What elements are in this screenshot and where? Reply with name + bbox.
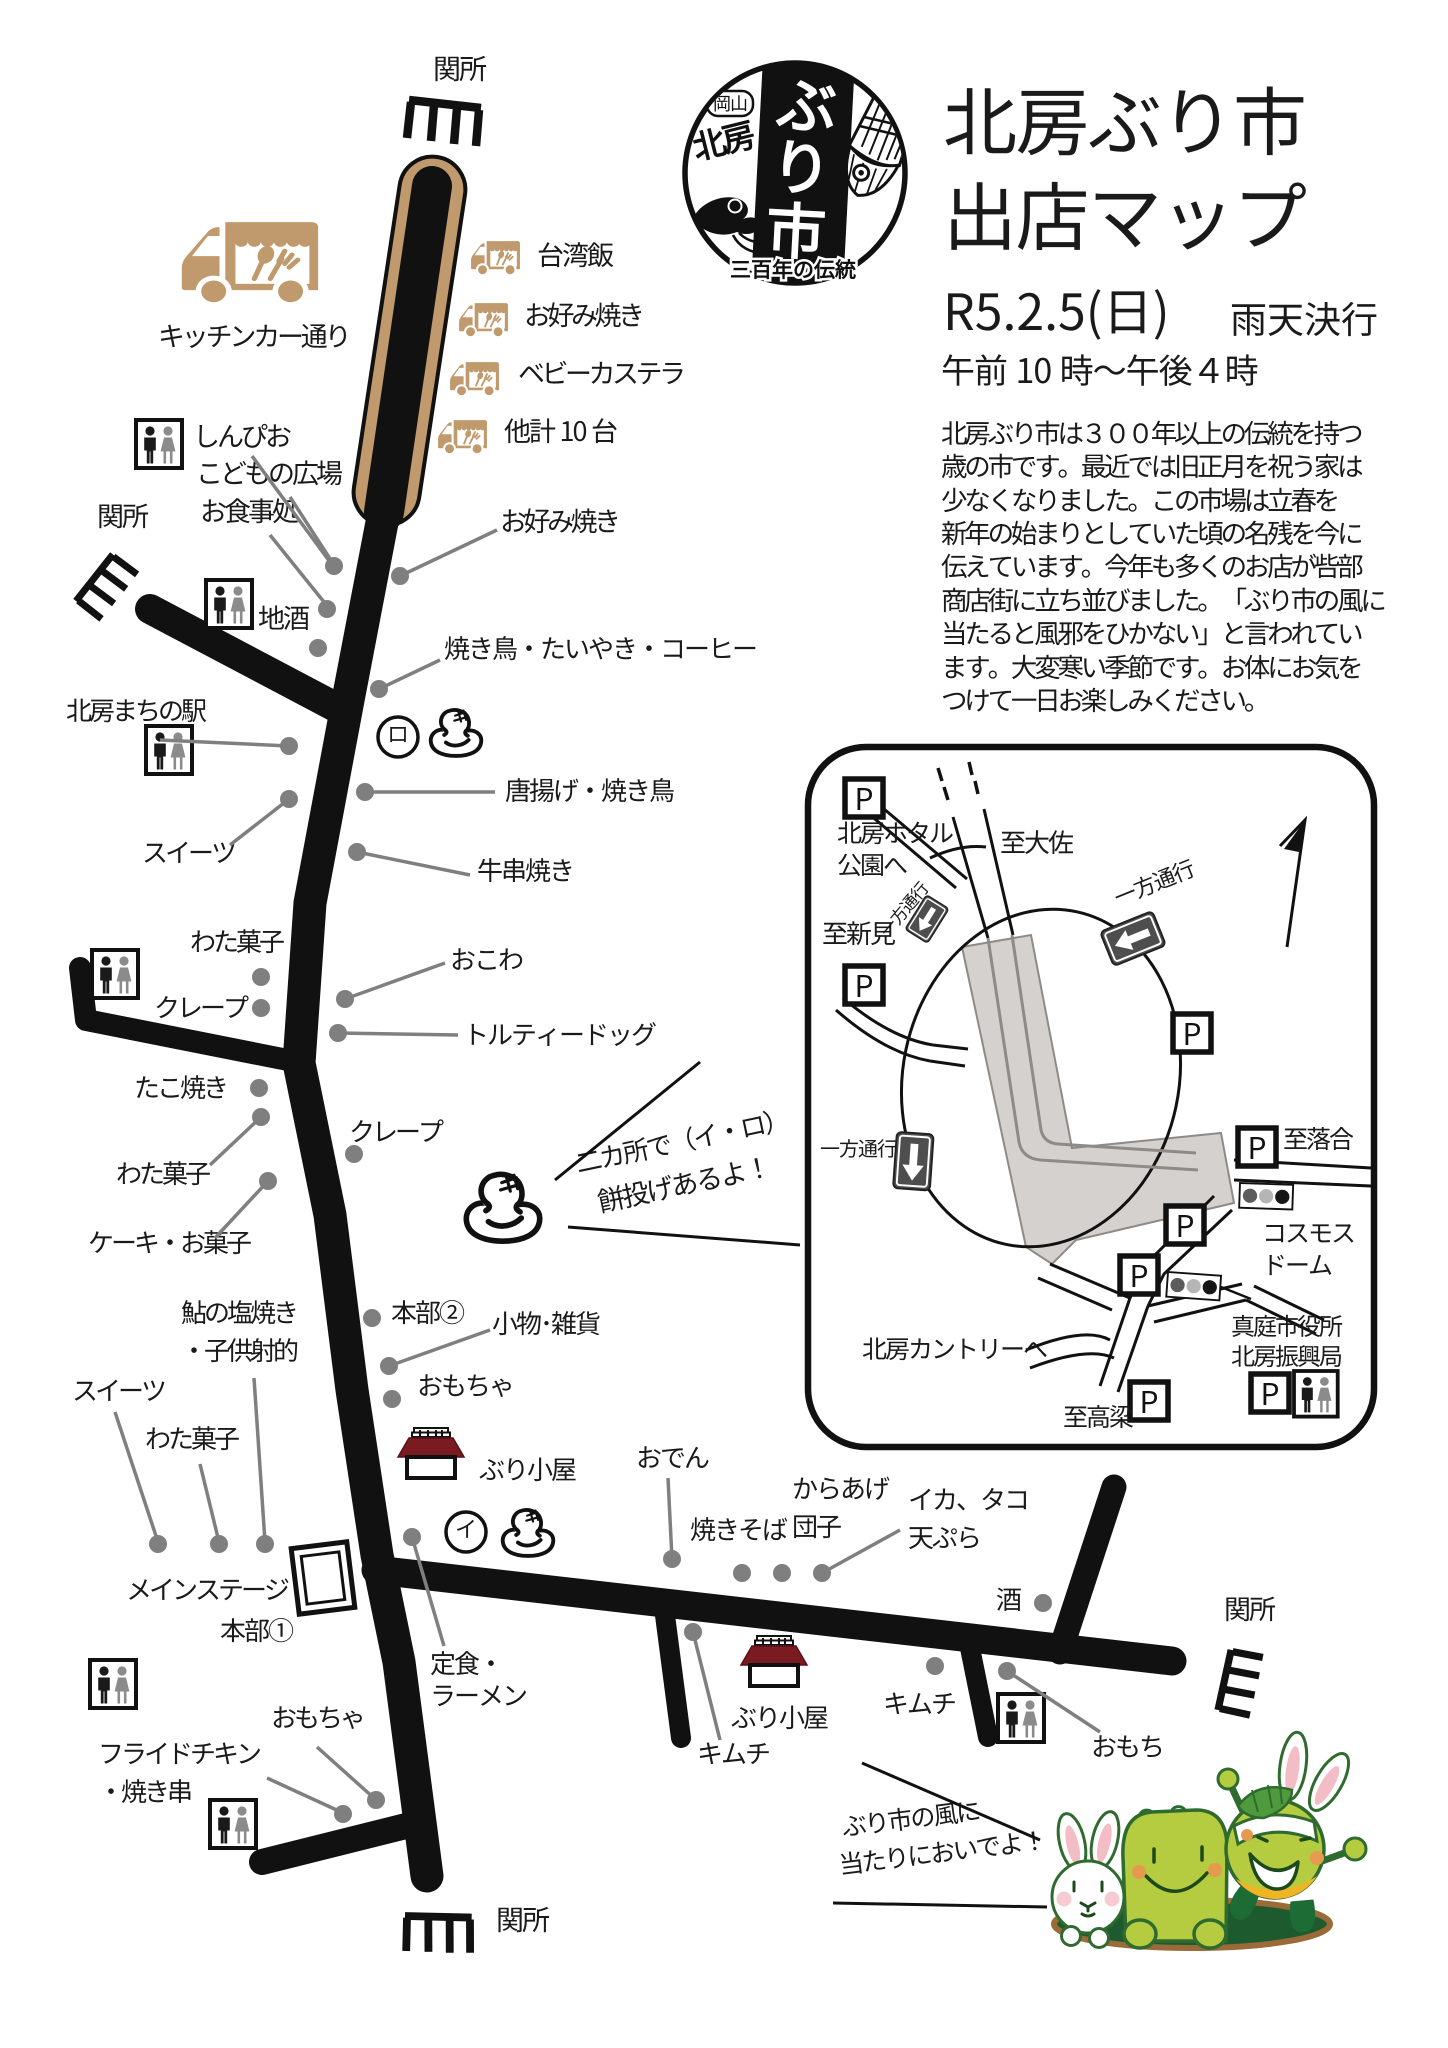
svg-text:本部②: 本部②	[391, 1293, 465, 1330]
svg-text:ぶり小屋: ぶり小屋	[479, 1450, 576, 1487]
svg-text:わた菓子: わた菓子	[190, 922, 284, 959]
svg-text:関所: 関所	[496, 1899, 550, 1939]
svg-text:キッチンカー通り: キッチンカー通り	[158, 315, 348, 354]
svg-text:北房まちの駅: 北房まちの駅	[66, 691, 207, 728]
svg-text:本部①: 本部①	[220, 1611, 294, 1648]
svg-text:・子供射的: ・子供射的	[181, 1331, 298, 1368]
svg-text:焼き鳥・たいやき・コーヒー: 焼き鳥・たいやき・コーヒー	[444, 629, 756, 666]
svg-text:たこ焼き: たこ焼き	[134, 1068, 226, 1105]
svg-text:牛串焼き: 牛串焼き	[477, 851, 573, 888]
svg-text:天ぷら: 天ぷら	[908, 1518, 980, 1555]
svg-text:こどもの広場: こどもの広場	[196, 452, 342, 491]
svg-text:鮎の塩焼き: 鮎の塩焼き	[181, 1293, 296, 1330]
svg-text:至新見: 至新見	[822, 914, 895, 951]
svg-text:クレープ: クレープ	[349, 1112, 444, 1149]
svg-text:お好み焼き: お好み焼き	[500, 500, 618, 539]
svg-text:北房ぶり市: 北房ぶり市	[943, 64, 1306, 171]
svg-text:メインステージ: メインステージ	[126, 1570, 289, 1607]
svg-text:・焼き串: ・焼き串	[98, 1772, 191, 1809]
svg-text:おもちゃ: おもちゃ	[271, 1698, 363, 1735]
svg-text:ベビーカステラ: ベビーカステラ	[518, 352, 683, 391]
svg-text:しんぴお: しんぴお	[193, 415, 291, 454]
svg-text:関所: 関所	[1224, 1588, 1276, 1627]
svg-text:焼きそば: 焼きそば	[690, 1510, 788, 1547]
svg-text:ケーキ・お菓子: ケーキ・お菓子	[88, 1223, 251, 1260]
svg-text:わた菓子: わた菓子	[145, 1419, 239, 1456]
svg-text:おでん: おでん	[636, 1438, 709, 1475]
svg-text:おこわ: おこわ	[450, 940, 523, 977]
svg-text:酒: 酒	[996, 1580, 1021, 1617]
svg-text:関所: 関所	[97, 495, 149, 534]
svg-text:ドーム: ドーム	[1262, 1246, 1332, 1282]
svg-text:至大佐: 至大佐	[1000, 823, 1074, 860]
svg-text:わた菓子: わた菓子	[116, 1154, 210, 1191]
svg-text:イカ、タコ: イカ、タコ	[908, 1480, 1028, 1517]
svg-text:R5.2.5(日): R5.2.5(日)	[943, 273, 1170, 345]
svg-text:一方通行: 一方通行	[820, 1133, 897, 1162]
svg-text:イ: イ	[455, 1512, 477, 1544]
svg-text:北房ホタル: 北房ホタル	[837, 814, 953, 850]
svg-text:至高梁: 至高梁	[1063, 1398, 1134, 1434]
svg-text:ラーメン: ラーメン	[430, 1676, 526, 1713]
svg-text:北房振興局: 北房振興局	[1231, 1337, 1341, 1372]
svg-text:ぶり小屋: ぶり小屋	[731, 1698, 828, 1735]
svg-text:北房カントリーへ: 北房カントリーへ	[862, 1330, 1047, 1366]
svg-text:出店マップ: 出店マップ	[943, 159, 1306, 266]
svg-text:コスモス: コスモス	[1262, 1214, 1354, 1250]
svg-text:雨天決行: 雨天決行	[1230, 290, 1378, 344]
svg-text:クレープ: クレープ	[154, 988, 249, 1025]
svg-text:スイーツ: スイーツ	[142, 833, 235, 870]
svg-text:至落合: 至落合	[1283, 1120, 1354, 1156]
svg-text:関所: 関所	[433, 48, 487, 88]
svg-text:団子: 団子	[792, 1507, 841, 1544]
svg-text:おもちゃ: おもちゃ	[417, 1366, 513, 1403]
svg-text:午前 10 時〜午後４時: 午前 10 時〜午後４時	[941, 344, 1258, 393]
svg-text:キムチ: キムチ	[697, 1734, 769, 1771]
svg-text:お食事処: お食事処	[200, 490, 299, 529]
svg-text:つけて一日お楽しみください。: つけて一日お楽しみください。	[941, 679, 1267, 718]
svg-text:フライドチキン: フライドチキン	[98, 1734, 260, 1771]
svg-text:唐揚げ・焼き鳥: 唐揚げ・焼き鳥	[505, 771, 674, 808]
svg-text:お好み焼き: お好み焼き	[524, 294, 642, 333]
svg-text:おもち: おもち	[1091, 1727, 1163, 1764]
svg-text:トルティードッグ: トルティードッグ	[463, 1015, 656, 1052]
svg-text:地酒: 地酒	[258, 597, 309, 636]
svg-text:他計 10 台: 他計 10 台	[504, 410, 617, 449]
svg-text:ロ: ロ	[387, 717, 409, 749]
svg-text:小物･雑貨: 小物･雑貨	[492, 1304, 600, 1341]
svg-text:からあげ: からあげ	[792, 1469, 890, 1506]
svg-text:キムチ: キムチ	[883, 1684, 955, 1721]
svg-text:台湾飯: 台湾飯	[537, 234, 614, 273]
svg-text:スイーツ: スイーツ	[72, 1371, 165, 1408]
svg-text:公園へ: 公園へ	[837, 846, 907, 882]
svg-text:三百年の伝統: 三百年の伝統	[730, 254, 856, 284]
